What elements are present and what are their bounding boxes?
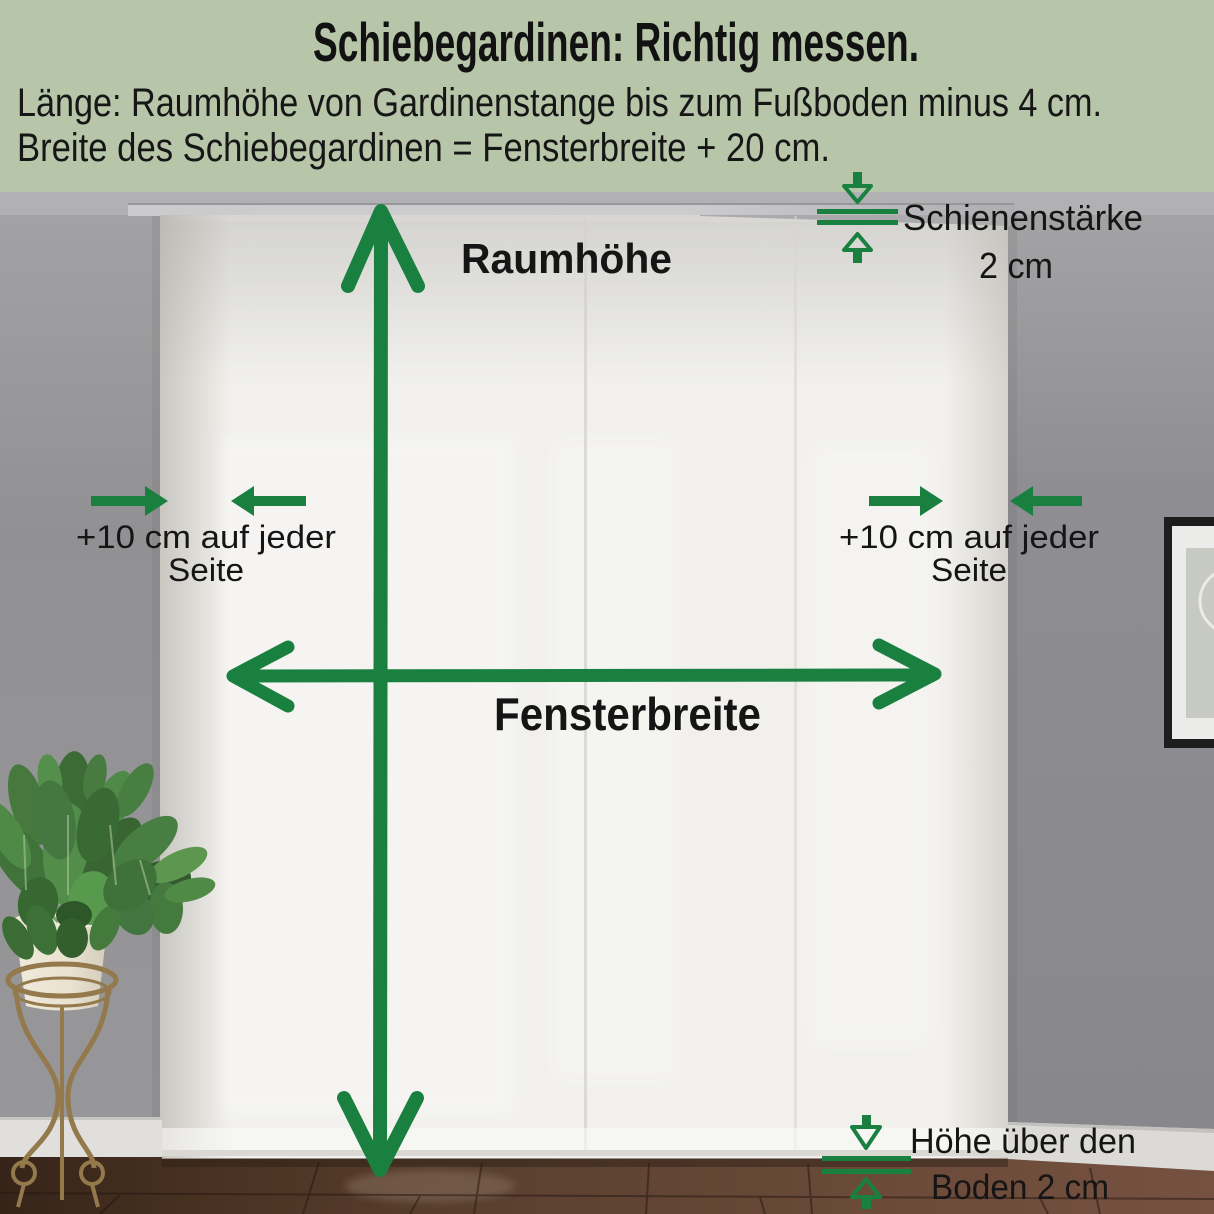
svg-text:+10 cm auf jeder: +10 cm auf jeder [839, 519, 1099, 555]
svg-text:+10 cm auf jeder: +10 cm auf jeder [76, 519, 336, 555]
svg-text:2 cm: 2 cm [979, 245, 1053, 286]
svg-text:Raumhöhe: Raumhöhe [461, 235, 672, 282]
svg-text:Länge: Raumhöhe von Gardinenst: Länge: Raumhöhe von Gardinenstange bis z… [17, 81, 1102, 125]
svg-text:Fensterbreite: Fensterbreite [494, 688, 761, 740]
svg-text:Höhe über den: Höhe über den [910, 1122, 1136, 1161]
svg-text:Breite des Schiebegardinen = F: Breite des Schiebegardinen = Fensterbrei… [17, 126, 830, 170]
svg-text:Seite: Seite [168, 552, 244, 588]
svg-text:Schiebegardinen: Richtig messe: Schiebegardinen: Richtig messen. [313, 11, 919, 73]
svg-text:Schienenstärke: Schienenstärke [903, 197, 1143, 238]
svg-text:Seite: Seite [931, 552, 1007, 588]
svg-text:Boden 2 cm: Boden 2 cm [931, 1168, 1109, 1207]
